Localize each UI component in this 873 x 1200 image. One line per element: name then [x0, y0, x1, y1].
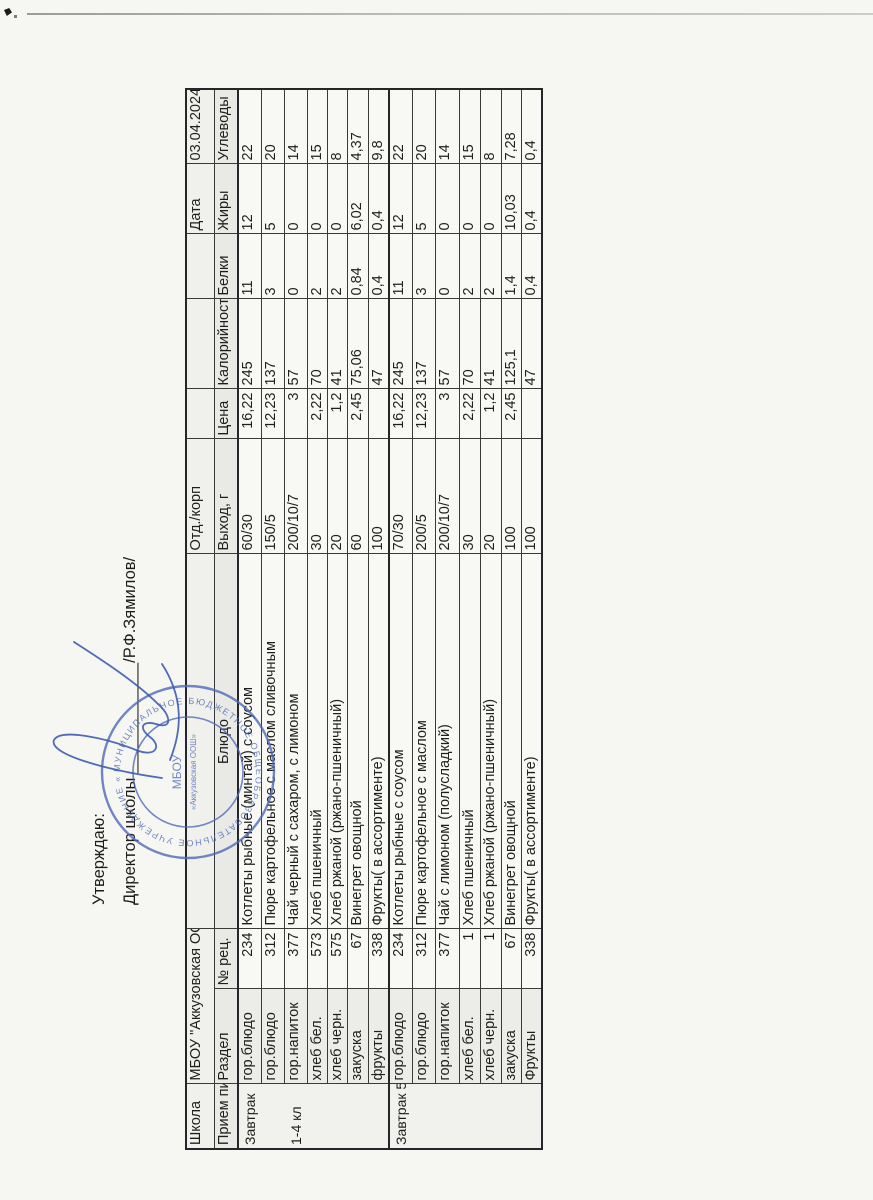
cell-out: 100: [501, 439, 521, 554]
table-row: хлеб бел.1Хлеб пшеничный302,22702015: [459, 89, 480, 1149]
date-value-cell: 03.04.2024: [186, 89, 214, 164]
cell-fat: 10,03: [501, 164, 521, 234]
meal-group-label: Завтрак 5-9 кл: [393, 1084, 410, 1145]
table-row: закуска67Винегрет овощной1002,45125,11,4…: [501, 89, 521, 1149]
cell-kcal: 70: [307, 299, 327, 389]
cell-dish: Винегрет овощной: [501, 554, 521, 929]
menu-table: Школа МБОУ "Аккузовская ООШ" Отд./корп Д…: [185, 88, 543, 1150]
cell-rec: 234: [389, 929, 412, 989]
cell-out: 20: [327, 439, 347, 554]
cell-carb: 8: [480, 89, 501, 164]
cell-rec: 338: [521, 929, 542, 989]
cell-price: 2,22: [459, 389, 480, 439]
dept-label-cell: Отд./корп: [186, 439, 214, 554]
cell-rec: 312: [261, 929, 284, 989]
cell-protein: 1,4: [501, 234, 521, 299]
table-row: Завтрак 5-9 кл гор.блюдо234Котлеты рыбны…: [389, 89, 412, 1149]
cell-rec: 1: [480, 929, 501, 989]
scan-artifact-dot: [14, 15, 17, 18]
cell-kcal: 41: [480, 299, 501, 389]
cell-rec: 67: [348, 929, 368, 989]
table-row: закуска67Винегрет овощной602,4575,060,84…: [348, 89, 368, 1149]
col-header-fat: Жиры: [214, 164, 238, 234]
cell-carb: 9,8: [368, 89, 389, 164]
cell-carb: 7,28: [501, 89, 521, 164]
meal-group-sublabel: 1-4 кл: [288, 1106, 305, 1145]
col-header-protein: Белки: [214, 234, 238, 299]
cell-out: 200/10/7: [284, 439, 307, 554]
cell-rec: 573: [307, 929, 327, 989]
table-row: гор.напиток377Чай черный с сахаром, с ли…: [284, 89, 307, 1149]
cell-fat: 12: [389, 164, 412, 234]
cell-out: 30: [459, 439, 480, 554]
date-label-cell: Дата: [186, 164, 214, 234]
cell-protein: 0,84: [348, 234, 368, 299]
cell-price: 2,45: [348, 389, 368, 439]
cell-protein: 2: [480, 234, 501, 299]
cell-kcal: 245: [238, 299, 261, 389]
cell-kcal: 137: [412, 299, 435, 389]
meal-group-label: Завтрак: [242, 1094, 259, 1145]
cell-dish: Пюре картофельное с маслом: [412, 554, 435, 929]
table-row: хлеб черн.575Хлеб ржаной (ржано-пшеничны…: [327, 89, 347, 1149]
cell-price: 2,22: [307, 389, 327, 439]
cell-out: 150/5: [261, 439, 284, 554]
cell-dish: Чай с лимоном (полусладкий): [435, 554, 459, 929]
cell-rec: 377: [435, 929, 459, 989]
cell-fat: 0: [327, 164, 347, 234]
col-header-out: Выход, г: [214, 439, 238, 554]
cell-fat: 0: [459, 164, 480, 234]
table-row: гор.блюдо312Пюре картофельное с маслом20…: [412, 89, 435, 1149]
table-row: гор.блюдо312Пюре картофельное с маслом с…: [261, 89, 284, 1149]
cell-out: 20: [480, 439, 501, 554]
cell-out: 70/30: [389, 439, 412, 554]
col-header-price: Цена: [214, 389, 238, 439]
cell-out: 60: [348, 439, 368, 554]
cell-rec: 338: [368, 929, 389, 989]
cell-carb: 14: [435, 89, 459, 164]
cell-out: 30: [307, 439, 327, 554]
cell-fat: 5: [261, 164, 284, 234]
cell-price: 2,45: [501, 389, 521, 439]
table-row: Завтрак1-4 кл гор.блюдо234Котлеты рыбные…: [238, 89, 261, 1149]
cell-fat: 12: [238, 164, 261, 234]
cell-price: 12,23: [412, 389, 435, 439]
cell-carb: 14: [284, 89, 307, 164]
cell-section: гор.блюдо: [389, 989, 412, 1084]
cell-rec: 575: [327, 929, 347, 989]
empty-cell: [186, 234, 214, 299]
cell-section: гор.блюдо: [238, 989, 261, 1084]
cell-carb: 20: [412, 89, 435, 164]
cell-protein: 0: [284, 234, 307, 299]
cell-carb: 8: [327, 89, 347, 164]
cell-kcal: 57: [435, 299, 459, 389]
cell-carb: 20: [261, 89, 284, 164]
cell-carb: 15: [307, 89, 327, 164]
cell-protein: 0,4: [368, 234, 389, 299]
table-row: хлеб черн.1Хлеб ржаной (ржано-пшеничный)…: [480, 89, 501, 1149]
cell-rec: 67: [501, 929, 521, 989]
cell-rec: 312: [412, 929, 435, 989]
cell-fat: 0: [307, 164, 327, 234]
cell-section: гор.напиток: [435, 989, 459, 1084]
cell-carb: 22: [389, 89, 412, 164]
cell-price: [521, 389, 542, 439]
col-header-carb: Углеводы: [214, 89, 238, 164]
col-header-meal: Прием пищи: [214, 1084, 238, 1149]
cell-dish: Хлеб пшеничный: [459, 554, 480, 929]
cell-carb: 0,4: [521, 89, 542, 164]
cell-section: гор.блюдо: [412, 989, 435, 1084]
cell-rec: 234: [238, 929, 261, 989]
cell-price: 1,2: [327, 389, 347, 439]
cell-kcal: 137: [261, 299, 284, 389]
cell-protein: 0,4: [521, 234, 542, 299]
cell-fat: 0,4: [521, 164, 542, 234]
cell-dish: Котлеты рыбные с соусом: [389, 554, 412, 929]
cell-section: закуска: [501, 989, 521, 1084]
cell-kcal: 70: [459, 299, 480, 389]
cell-price: 12,23: [261, 389, 284, 439]
cell-protein: 11: [389, 234, 412, 299]
cell-kcal: 47: [521, 299, 542, 389]
scanned-page: Утверждаю: Директор школы ____________/Р…: [0, 0, 873, 1200]
cell-section: гор.напиток: [284, 989, 307, 1084]
cell-dish: Хлеб пшеничный: [307, 554, 327, 929]
table-row: гор.напиток377Чай с лимоном (полусладкий…: [435, 89, 459, 1149]
cell-carb: 22: [238, 89, 261, 164]
cell-protein: 2: [307, 234, 327, 299]
meal-group-cell: Завтрак 5-9 кл: [389, 1084, 542, 1149]
cell-kcal: 47: [368, 299, 389, 389]
cell-fat: 0: [284, 164, 307, 234]
col-header-section: Раздел: [214, 989, 238, 1084]
cell-section: хлеб бел.: [307, 989, 327, 1084]
cell-kcal: 75,06: [348, 299, 368, 389]
cell-dish: Хлеб ржаной (ржано-пшеничный): [480, 554, 501, 929]
cell-dish: Хлеб ржаной (ржано-пшеничный): [327, 554, 347, 929]
cell-section: хлеб бел.: [459, 989, 480, 1084]
cell-protein: 3: [412, 234, 435, 299]
cell-protein: 11: [238, 234, 261, 299]
cell-out: 60/30: [238, 439, 261, 554]
cell-section: Фрукты: [521, 989, 542, 1084]
col-header-kcal: Калорийность: [214, 299, 238, 389]
empty-cell: [186, 389, 214, 439]
cell-price: 3: [435, 389, 459, 439]
col-header-rec: № рец.: [214, 929, 238, 989]
cell-protein: 0: [435, 234, 459, 299]
cell-section: фрукты: [368, 989, 389, 1084]
cell-out: 100: [521, 439, 542, 554]
table-header-row-2: Прием пищи Раздел № рец. Блюдо Выход, г …: [214, 89, 238, 1149]
cell-price: 16,22: [389, 389, 412, 439]
school-label-cell: Школа: [186, 1084, 214, 1149]
cell-fat: 0: [480, 164, 501, 234]
cell-price: 16,22: [238, 389, 261, 439]
cell-section: гор.блюдо: [261, 989, 284, 1084]
cell-price: [368, 389, 389, 439]
cell-section: хлеб черн.: [327, 989, 347, 1084]
table-row: Фрукты338Фрукты( в ассортименте)100470,4…: [521, 89, 542, 1149]
cell-protein: 2: [327, 234, 347, 299]
school-name-cell: МБОУ "Аккузовская ООШ": [186, 929, 214, 1084]
cell-dish: Фрукты( в ассортименте): [521, 554, 542, 929]
cell-fat: 0,4: [368, 164, 389, 234]
cell-carb: 4,37: [348, 89, 368, 164]
cell-section: хлеб черн.: [480, 989, 501, 1084]
cell-fat: 0: [435, 164, 459, 234]
cell-kcal: 41: [327, 299, 347, 389]
meal-group-cell: Завтрак1-4 кл: [238, 1084, 389, 1149]
cell-protein: 2: [459, 234, 480, 299]
cell-protein: 3: [261, 234, 284, 299]
cell-kcal: 57: [284, 299, 307, 389]
cell-price: 1,2: [480, 389, 501, 439]
cell-section: закуска: [348, 989, 368, 1084]
cell-out: 100: [368, 439, 389, 554]
table-row: хлеб бел.573Хлеб пшеничный302,22702015: [307, 89, 327, 1149]
cell-rec: 1: [459, 929, 480, 989]
cell-dish: Фрукты( в ассортименте): [368, 554, 389, 929]
cell-carb: 15: [459, 89, 480, 164]
cell-kcal: 245: [389, 299, 412, 389]
cell-price: 3: [284, 389, 307, 439]
cell-out: 200/10/7: [435, 439, 459, 554]
cell-fat: 6,02: [348, 164, 368, 234]
scan-artifact-edge-line: [27, 13, 873, 15]
empty-cell: [186, 299, 214, 389]
cell-dish: Чай черный с сахаром, с лимоном: [284, 554, 307, 929]
table-row: фрукты338Фрукты( в ассортименте)100470,4…: [368, 89, 389, 1149]
handwritten-signature: [40, 612, 200, 802]
cell-dish: Винегрет овощной: [348, 554, 368, 929]
cell-rec: 377: [284, 929, 307, 989]
cell-fat: 5: [412, 164, 435, 234]
cell-out: 200/5: [412, 439, 435, 554]
cell-kcal: 125,1: [501, 299, 521, 389]
